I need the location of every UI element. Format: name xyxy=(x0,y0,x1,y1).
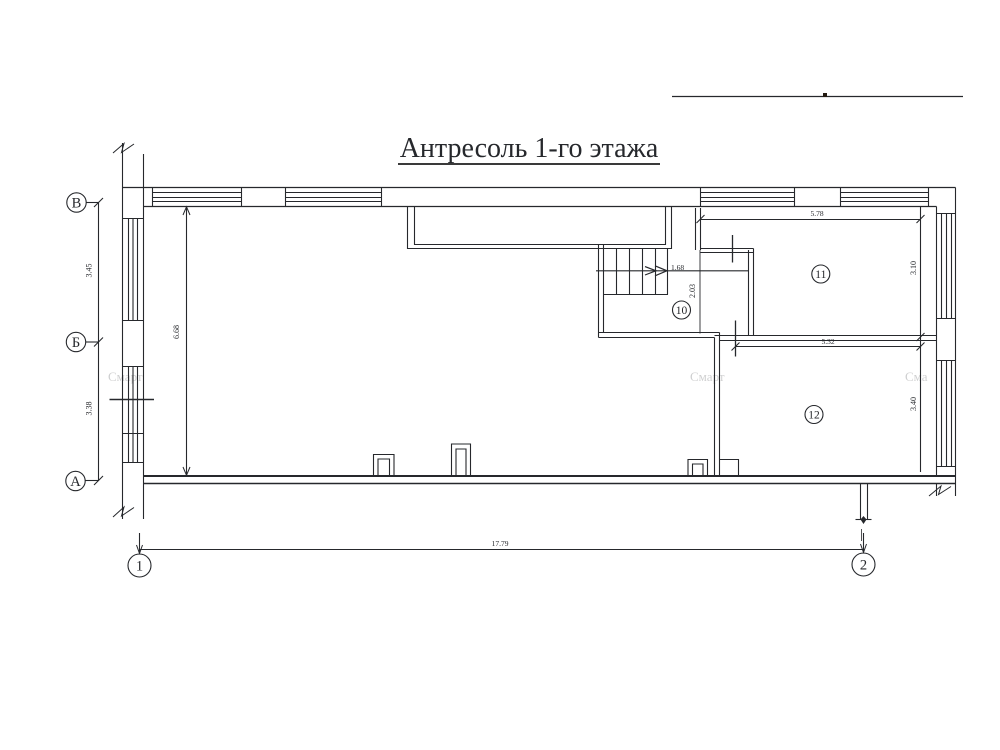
svg-text:5.78: 5.78 xyxy=(810,209,823,218)
svg-text:6.68: 6.68 xyxy=(172,325,181,339)
svg-text:2: 2 xyxy=(860,558,867,574)
svg-text:11: 11 xyxy=(815,269,826,281)
svg-text:3.10: 3.10 xyxy=(909,261,918,275)
svg-text:5.32: 5.32 xyxy=(821,337,834,346)
svg-text:12: 12 xyxy=(808,410,820,422)
svg-text:2.03: 2.03 xyxy=(688,284,697,298)
svg-text:3.38: 3.38 xyxy=(85,402,94,416)
svg-text:Сма: Сма xyxy=(905,369,928,384)
svg-text:10: 10 xyxy=(676,305,688,317)
svg-text:3.45: 3.45 xyxy=(85,264,94,278)
svg-text:1.68: 1.68 xyxy=(671,263,684,272)
svg-text:Смарт: Смарт xyxy=(108,369,143,384)
svg-text:1: 1 xyxy=(136,559,143,575)
svg-text:3.40: 3.40 xyxy=(909,397,918,411)
svg-text:Смарт: Смарт xyxy=(690,369,725,384)
svg-text:17.79: 17.79 xyxy=(492,539,509,548)
svg-text:В: В xyxy=(72,196,82,212)
svg-text:А: А xyxy=(70,474,81,490)
svg-text:Б: Б xyxy=(72,335,80,351)
svg-text:Антресоль 1-го этажа: Антресоль 1-го этажа xyxy=(400,133,659,164)
